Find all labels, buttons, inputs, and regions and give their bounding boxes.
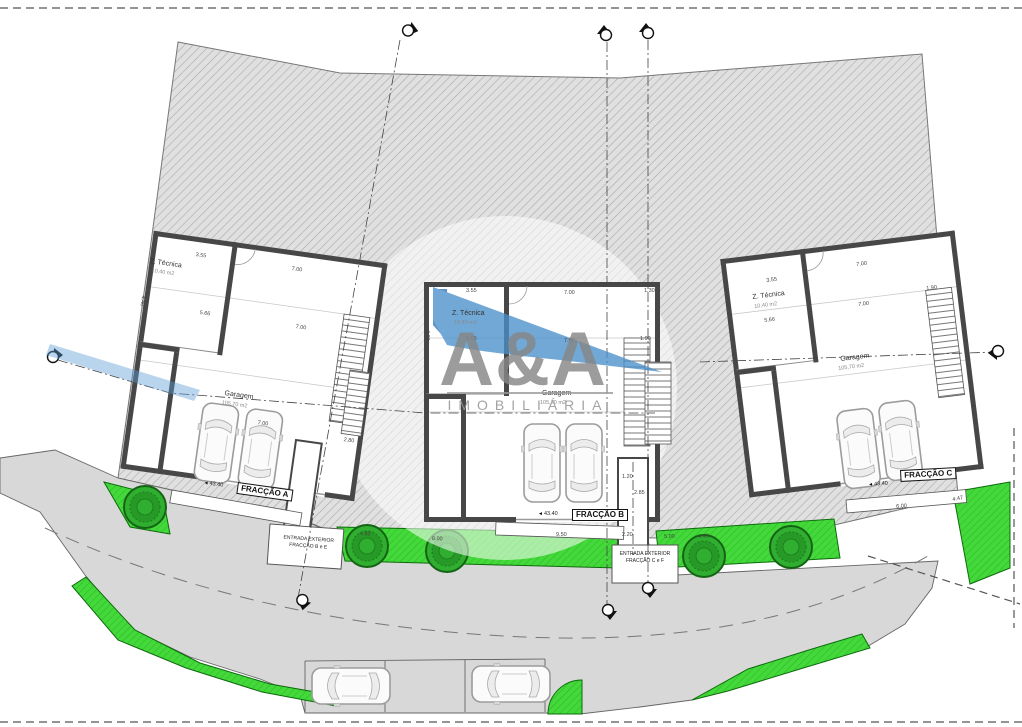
car-icon (312, 666, 390, 707)
survey-marker-icon (639, 23, 654, 39)
unit-b-garage-area: 105,70 m2 (540, 400, 566, 406)
elevation-arrow-icon: ◄ (538, 511, 543, 517)
car-icon (472, 664, 550, 705)
tree-icon (683, 535, 725, 577)
site-plan: Z. Técnica 10,40 m2 Garagem 105,70 m2 FR… (0, 0, 1022, 727)
car-icon (564, 424, 605, 502)
unit-b-elevation: ◄43.40 (538, 511, 558, 517)
stairs (645, 362, 671, 444)
elevation-arrow-icon: ◄ (868, 482, 873, 488)
entrance-label-cf: ENTRADA EXTERIOR FRACÇÃO C e F (612, 551, 678, 564)
plan-drawing (0, 0, 1022, 727)
tree-icon (770, 526, 812, 568)
car-icon (522, 424, 563, 502)
survey-marker-icon (597, 25, 612, 41)
survey-marker-icon (988, 346, 1004, 361)
unit-b-tech-room-label: Z. Técnica (452, 310, 485, 317)
tree-icon (124, 486, 166, 528)
elevation-arrow-icon: ◄ (203, 480, 209, 487)
unit-b-fraction-badge: FRACÇÃO B (572, 509, 628, 521)
unit-b-garage-label: Garagem (542, 390, 571, 397)
unit-b-tech-area: 10,40 m2 (454, 320, 477, 326)
survey-marker-icon (401, 20, 420, 38)
tree-icon (346, 525, 388, 567)
